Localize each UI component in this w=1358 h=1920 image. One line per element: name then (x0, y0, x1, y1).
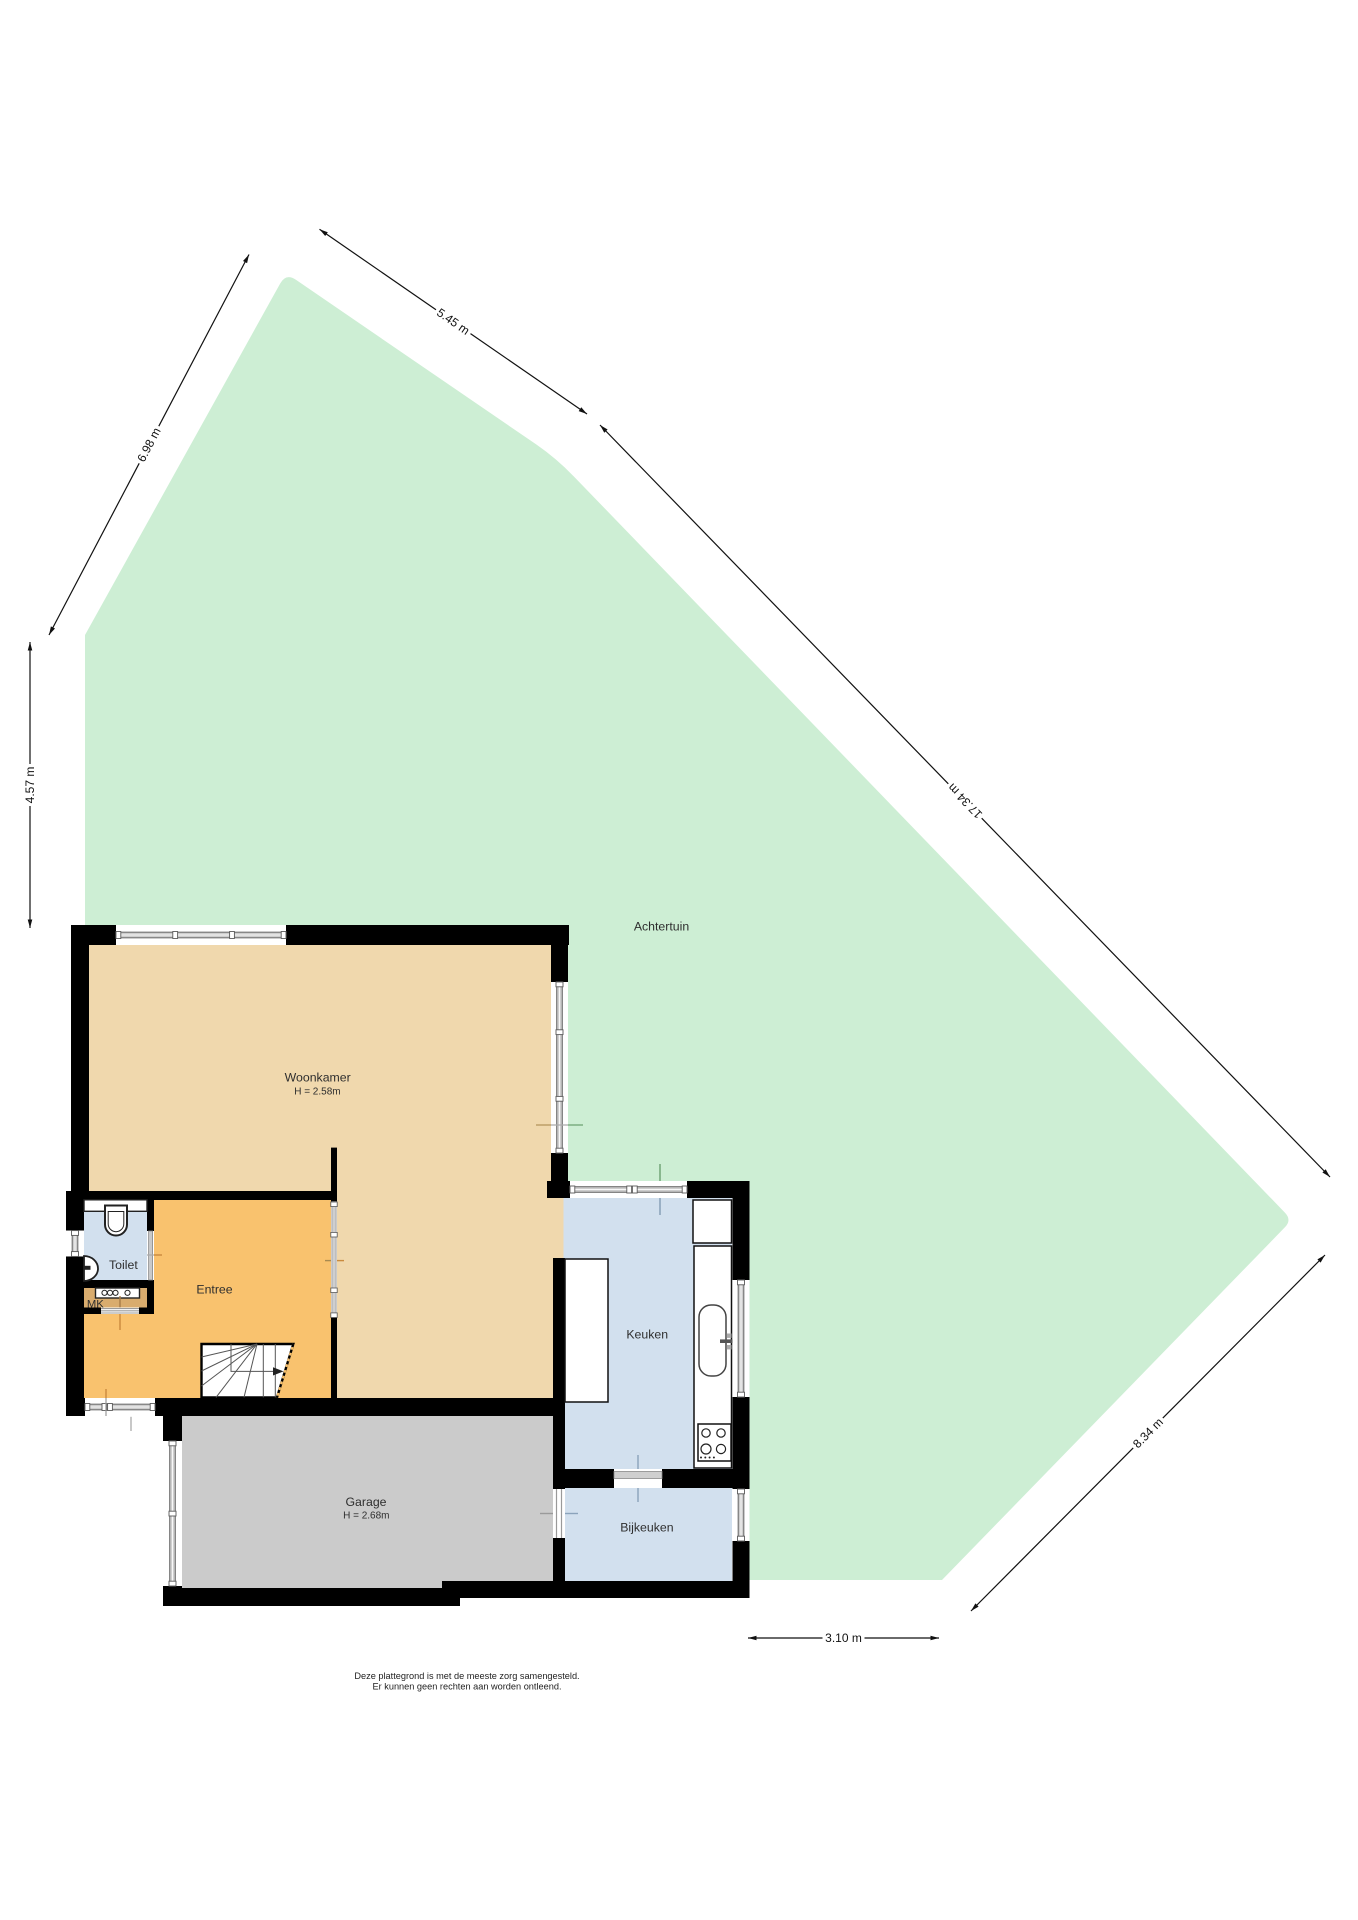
svg-text:Garage: Garage (345, 1495, 386, 1509)
svg-text:H = 2.58m: H = 2.58m (294, 1086, 340, 1097)
svg-text:Woonkamer: Woonkamer (285, 1071, 351, 1085)
svg-text:4.57 m: 4.57 m (23, 767, 37, 804)
svg-text:Er kunnen geen rechten aan wor: Er kunnen geen rechten aan worden ontlee… (373, 1682, 562, 1692)
svg-text:H = 2.68m: H = 2.68m (343, 1510, 389, 1521)
svg-text:Deze plattegrond is met de mee: Deze plattegrond is met de meeste zorg s… (354, 1671, 579, 1681)
svg-text:17.34 m: 17.34 m (945, 781, 985, 822)
svg-text:6.98 m: 6.98 m (134, 425, 163, 464)
svg-text:5.45 m: 5.45 m (434, 305, 472, 337)
svg-text:MK: MK (87, 1299, 104, 1311)
svg-text:Achtertuin: Achtertuin (634, 920, 690, 934)
svg-text:Toilet: Toilet (109, 1258, 138, 1272)
svg-text:Bijkeuken: Bijkeuken (620, 1521, 673, 1535)
svg-text:Entree: Entree (196, 1283, 232, 1297)
svg-text:3.10 m: 3.10 m (825, 1631, 862, 1645)
svg-text:8.34 m: 8.34 m (1130, 1415, 1166, 1451)
svg-text:Keuken: Keuken (626, 1328, 668, 1342)
